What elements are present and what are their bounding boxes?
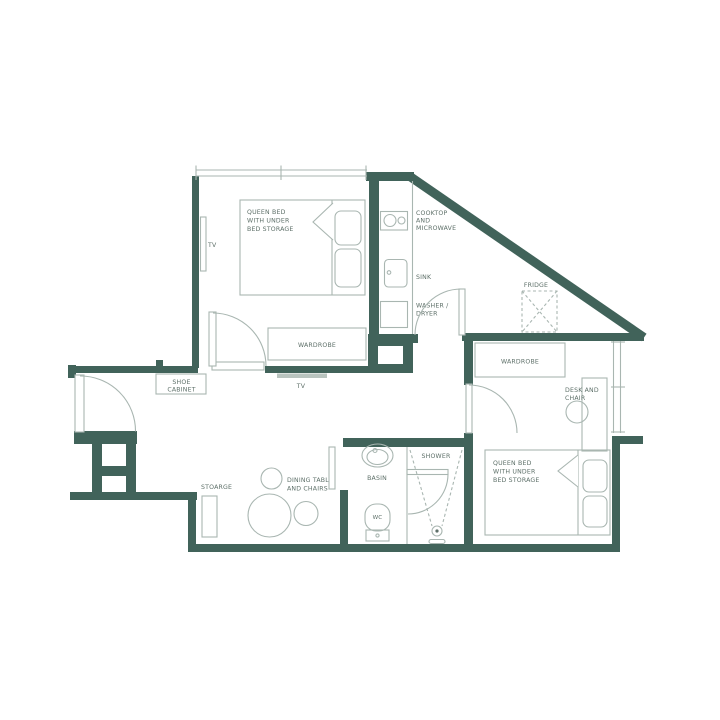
wc-label: WC (373, 515, 383, 521)
bed2-wardrobe-label: WARDROBE (501, 359, 539, 366)
bed1-wardrobe-label: WARDROBE (298, 342, 336, 349)
entrance-door-leaf (75, 375, 84, 432)
bed1-door-leaf (209, 312, 216, 366)
hall-tv-label: TV (296, 383, 306, 390)
bed1-door-threshold (212, 362, 264, 370)
cooktop-label-line1: COOKTOP (416, 210, 447, 217)
bed2-label-line1: QUEEN BED (493, 460, 532, 467)
bathroom: BASIN WC SHOWER (329, 444, 462, 544)
storage-cabinet (202, 496, 217, 537)
corridor-door-leaf (459, 289, 465, 335)
wall-bed1-left (192, 176, 199, 368)
entrance-door-arc (80, 376, 136, 432)
wall-h-right (126, 444, 136, 493)
dining-chair-top (261, 468, 282, 489)
hall-tv (277, 374, 327, 379)
window-bedroom1 (196, 166, 367, 181)
bathroom-sliding-door (329, 447, 335, 489)
wall-diagonal (410, 177, 644, 338)
bedroom1: QUEEN BED WITH UNDER BED STORAGE TV WARD… (201, 200, 367, 370)
bed1-tv (201, 217, 207, 271)
bed1-tv-label: TV (207, 242, 217, 249)
bed2-pillow-1 (583, 460, 607, 492)
dining-table (248, 494, 291, 537)
cooktop-label-line3: MICROWAVE (416, 225, 456, 232)
washer-label-line1: WASHER / (416, 303, 449, 310)
bed1-pillow-2 (335, 249, 361, 287)
shower-door-arc (408, 474, 448, 514)
bed1-blanket-fold (313, 203, 333, 240)
wall-hall-top (70, 366, 198, 373)
bed1-pillow-1 (335, 211, 361, 245)
wall-bath-left (340, 490, 348, 550)
bed1-label-line2: WITH UNDER (247, 218, 290, 225)
bed1-door-arc (213, 313, 266, 366)
wall-h-left (92, 444, 102, 493)
washer-dryer (381, 302, 408, 328)
wall-shaft-inner (378, 346, 403, 364)
wall-bottom-left (70, 492, 197, 500)
wall-bed2-top (462, 333, 644, 341)
dining-label-line2: AND CHAIRS (287, 486, 328, 493)
wall-h-rung (102, 466, 126, 476)
dining-label-line1: DINING TABLE (287, 477, 333, 484)
floor-plan-canvas: QUEEN BED WITH UNDER BED STORAGE TV WARD… (0, 0, 720, 720)
fridge-label: FRIDGE (524, 282, 548, 289)
wall-bed2-bottom (464, 544, 620, 552)
bed2-door-arc (469, 385, 517, 433)
wall-bath-bed2 (464, 433, 473, 552)
shower-label: SHOWER (422, 453, 451, 460)
wall-bath-top (343, 438, 465, 447)
walls (68, 172, 644, 552)
shoe-cabinet-label-line2: CABINET (167, 387, 195, 394)
bed1-label-line3: BED STORAGE (247, 226, 294, 233)
living-dining: STOARGE DINING TABLE AND CHAIRS (201, 468, 333, 537)
sink-label: SINK (416, 274, 432, 281)
wall-bed2-step (612, 436, 643, 444)
desk-label-line2: CHAIR (565, 395, 586, 402)
bed2-label-line3: BED STORAGE (493, 477, 540, 484)
bed2-label-line2: WITH UNDER (493, 469, 536, 476)
bed1-label-line1: QUEEN BED (247, 209, 286, 216)
bed2-chair (566, 401, 588, 423)
shoe-cabinet-label-line1: SHOE (172, 379, 190, 386)
wall-step-vertical (188, 492, 196, 552)
wall-bottom-main (188, 544, 473, 552)
wall-bed2-right-lower (612, 444, 620, 552)
floor-plan-page: QUEEN BED WITH UNDER BED STORAGE TV WARD… (0, 0, 720, 720)
wall-entry-bar (74, 431, 137, 444)
storage-label: STOARGE (201, 484, 232, 491)
wall-hall-stub (156, 360, 163, 367)
dining-chair-right (294, 502, 318, 526)
cooktop-label-line2: AND (416, 218, 430, 225)
bed2-pillow-2 (583, 496, 607, 527)
wall-bed1-kitchen (369, 176, 379, 337)
wc-cistern (366, 530, 389, 541)
desk-label-line1: DESK AND (565, 387, 599, 394)
window-bedroom2 (611, 341, 625, 433)
hallway: SHOE CABINET TV (75, 374, 327, 433)
wall-bed2-left-upper (464, 333, 473, 385)
bed2-door-leaf (466, 384, 472, 433)
wall-bed1-bottom (265, 366, 370, 373)
shower-door-leaf (407, 470, 448, 475)
bed2-blanket-fold (558, 455, 578, 487)
basin-label: BASIN (367, 475, 387, 482)
bedroom2: WARDROBE DESK AND CHAIR QUEEN BED WITH U… (466, 343, 610, 535)
